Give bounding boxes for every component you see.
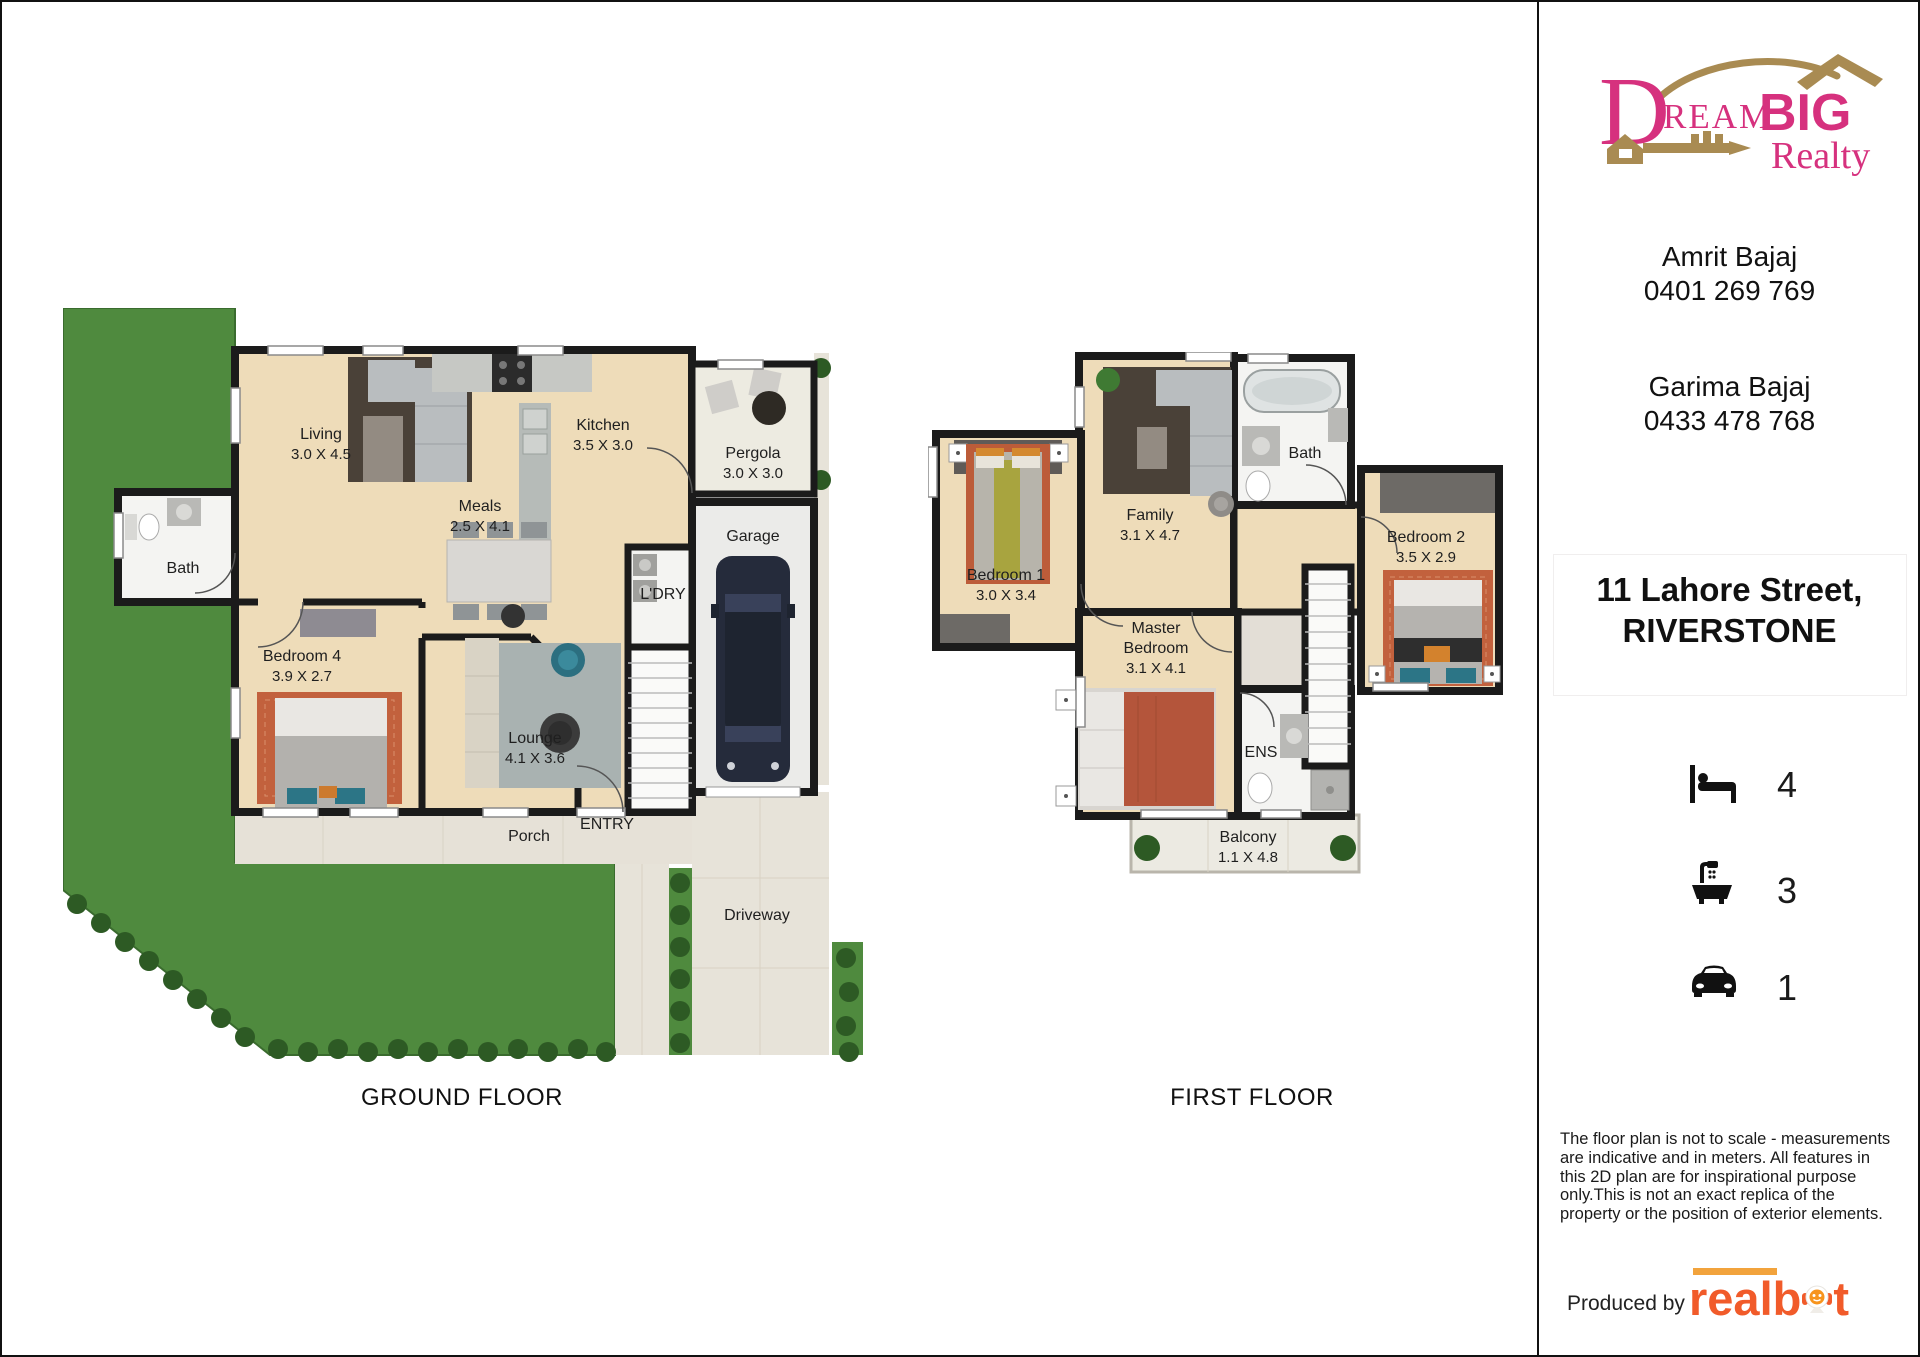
agent-1-phone: 0401 269 769 bbox=[1539, 274, 1920, 308]
room-label-porch: Porch bbox=[508, 828, 550, 845]
info-sidebar: D REAM BIG Realty Amrit Bajaj 0401 269 7… bbox=[1539, 2, 1920, 1357]
svg-text:Bath: Bath bbox=[1289, 445, 1322, 462]
baths-count: 3 bbox=[1764, 870, 1810, 912]
svg-text:Bedroom 2: Bedroom 2 bbox=[1387, 529, 1465, 546]
beds-feature bbox=[1688, 762, 1738, 813]
svg-text:3.0 X 3.4: 3.0 X 3.4 bbox=[976, 587, 1036, 604]
svg-text:Pergola: Pergola bbox=[725, 445, 780, 462]
agent-2-phone: 0433 478 768 bbox=[1539, 404, 1920, 438]
svg-text:Balcony: Balcony bbox=[1220, 829, 1277, 846]
svg-text:Bedroom: Bedroom bbox=[1124, 640, 1189, 657]
svg-text:3.1 X 4.7: 3.1 X 4.7 bbox=[1120, 527, 1180, 544]
room-label-entry: ENTRY bbox=[580, 816, 634, 833]
agent-1: Amrit Bajaj 0401 269 769 bbox=[1539, 240, 1920, 308]
robot-head-icon bbox=[1802, 1283, 1832, 1317]
svg-text:4.1 X 3.6: 4.1 X 3.6 bbox=[505, 750, 565, 767]
ground-floor-plan: Living 3.0 X 4.5 Kitchen 3.5 X 3.0 Pergo… bbox=[63, 308, 863, 1068]
svg-text:Bedroom 1: Bedroom 1 bbox=[967, 567, 1045, 584]
beds-count: 4 bbox=[1764, 764, 1810, 806]
svg-text:ENS: ENS bbox=[1245, 744, 1278, 761]
svg-text:Living: Living bbox=[300, 426, 342, 443]
dreambig-realty-logo: D REAM BIG Realty bbox=[1599, 46, 1889, 176]
car-icon bbox=[1688, 962, 1740, 998]
disclaimer-text: The floor plan is not to scale - measure… bbox=[1560, 1130, 1898, 1224]
svg-text:3.0 X 3.0: 3.0 X 3.0 bbox=[723, 465, 783, 482]
svg-text:1.1 X 4.8: 1.1 X 4.8 bbox=[1218, 849, 1278, 866]
svg-text:Driveway: Driveway bbox=[724, 907, 790, 924]
room-label-laundry: L'DRY bbox=[640, 586, 686, 603]
svg-text:3.1 X 4.1: 3.1 X 4.1 bbox=[1126, 660, 1186, 677]
room-label-bath: Bath bbox=[167, 560, 200, 577]
address-line2: RIVERSTONE bbox=[1539, 610, 1920, 651]
svg-text:2.5 X 4.1: 2.5 X 4.1 bbox=[450, 518, 510, 535]
agent-2: Garima Bajaj 0433 478 768 bbox=[1539, 370, 1920, 438]
floorplan-sheet: Living 3.0 X 4.5 Kitchen 3.5 X 3.0 Pergo… bbox=[0, 0, 1920, 1357]
baths-feature bbox=[1688, 857, 1734, 910]
svg-text:L'DRY: L'DRY bbox=[640, 586, 686, 603]
svg-text:3.0 X 4.5: 3.0 X 4.5 bbox=[291, 446, 351, 463]
cars-count: 1 bbox=[1764, 967, 1810, 1009]
room-label-bath-ff: Bath bbox=[1289, 445, 1322, 462]
svg-text:Garage: Garage bbox=[726, 528, 779, 545]
svg-text:3.9 X 2.7: 3.9 X 2.7 bbox=[272, 668, 332, 685]
realbot-word-right: t bbox=[1833, 1278, 1849, 1320]
first-floor-title: FIRST FLOOR bbox=[1102, 1084, 1402, 1112]
stairs-ff bbox=[1305, 567, 1351, 766]
agent-2-name: Garima Bajaj bbox=[1539, 370, 1920, 404]
dining-table bbox=[447, 522, 551, 620]
realbot-word-mid: b bbox=[1773, 1278, 1802, 1320]
realbot-logo: realb t bbox=[1689, 1268, 1909, 1320]
cars-feature bbox=[1688, 962, 1740, 1003]
bed-icon bbox=[1688, 762, 1738, 808]
svg-text:REAM: REAM bbox=[1663, 97, 1772, 136]
car bbox=[711, 556, 795, 782]
stairs bbox=[628, 647, 692, 812]
svg-text:BIG: BIG bbox=[1759, 84, 1851, 142]
svg-text:Bedroom 4: Bedroom 4 bbox=[263, 648, 341, 665]
property-address: 11 Lahore Street, RIVERSTONE bbox=[1539, 569, 1920, 651]
address-line1: 11 Lahore Street, bbox=[1539, 569, 1920, 610]
svg-text:Lounge: Lounge bbox=[508, 730, 561, 747]
first-floor-plan: Bedroom 1 3.0 X 3.4 Family 3.1 X 4.7 Bat… bbox=[928, 352, 1512, 942]
ground-floor-title: GROUND FLOOR bbox=[312, 1084, 612, 1112]
svg-text:Bath: Bath bbox=[167, 560, 200, 577]
bedroom2-furniture bbox=[1369, 570, 1500, 686]
room-label-ens: ENS bbox=[1245, 744, 1278, 761]
bath-icon bbox=[1688, 857, 1734, 905]
svg-text:3.5 X 2.9: 3.5 X 2.9 bbox=[1396, 549, 1456, 566]
agent-1-name: Amrit Bajaj bbox=[1539, 240, 1920, 274]
room-label-master: Master Bedroom 3.1 X 4.1 bbox=[1124, 620, 1189, 677]
svg-text:Realty: Realty bbox=[1771, 135, 1870, 176]
garden-strip bbox=[669, 868, 692, 1055]
svg-text:Family: Family bbox=[1126, 507, 1173, 524]
room-label-garage: Garage bbox=[726, 528, 779, 545]
bedroom2-robe bbox=[1380, 473, 1495, 513]
svg-text:Porch: Porch bbox=[508, 828, 550, 845]
garage-door bbox=[706, 787, 800, 797]
landing-floor bbox=[1238, 612, 1305, 689]
svg-text:3.5 X 3.0: 3.5 X 3.0 bbox=[573, 437, 633, 454]
svg-text:ENTRY: ENTRY bbox=[580, 816, 634, 833]
realbot-word-left: real bbox=[1689, 1278, 1773, 1320]
room-label-driveway: Driveway bbox=[724, 907, 790, 924]
svg-text:Master: Master bbox=[1132, 620, 1182, 637]
svg-text:Meals: Meals bbox=[459, 498, 502, 515]
bedroom1-robe bbox=[940, 614, 1010, 643]
produced-by-label: Produced by bbox=[1567, 1292, 1685, 1316]
svg-text:Kitchen: Kitchen bbox=[576, 417, 629, 434]
